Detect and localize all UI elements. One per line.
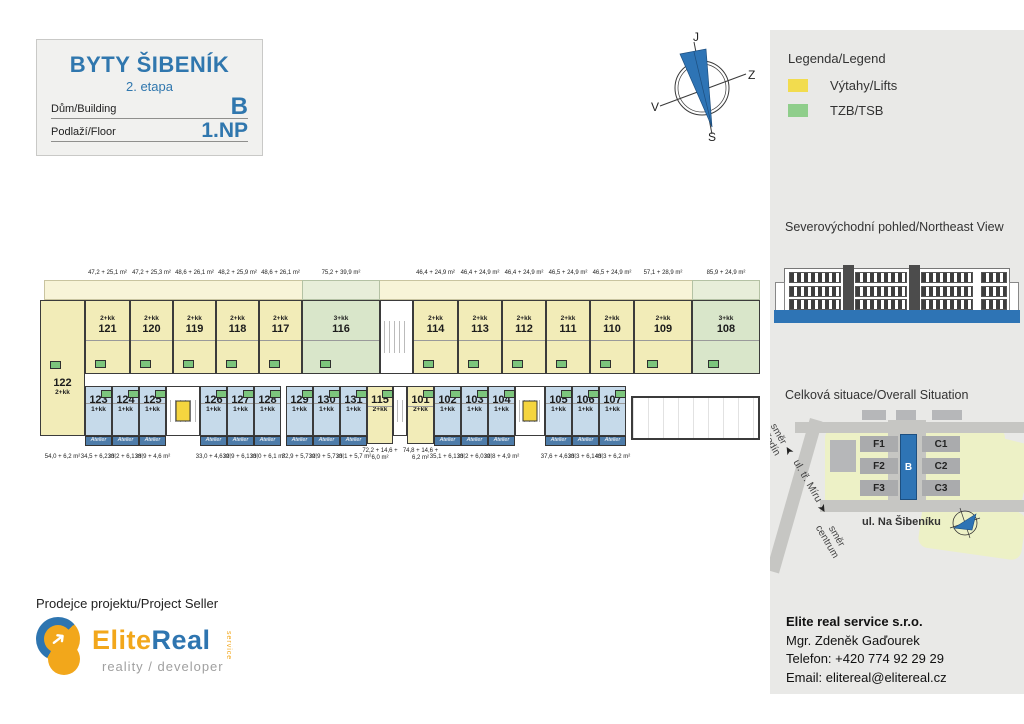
atelier-strip: Atelier [545,436,572,446]
unit-area-label: 32,8 + 4,9 m² [484,454,520,461]
unit-cell-129: 1291+kk [286,386,313,436]
unit-area-label: 46,4 + 24,9 m² [461,270,500,277]
unit-cell-110: 2+kk110 [590,300,634,374]
unit-area-label: 54,0 + 6,2 m² [45,454,81,461]
unit-type: 3+kk [693,315,759,323]
contact-email: Email: elitereal@elitereal.cz [786,669,947,688]
unit-area-label: 72,2 + 14,6 + 6,0 m² [362,448,397,461]
mini-compass-icon [948,506,982,540]
unit-type: 1+kk [201,406,226,414]
unit-type: 2+kk [41,389,84,397]
atelier-strip: Atelier [599,436,626,446]
unit-cell-111: 2+kk111 [546,300,590,374]
unit-type: 1+kk [489,406,514,414]
unit-type: 2+kk [174,315,215,323]
building-c2: C2 [922,458,960,474]
unit-number: 113 [459,323,501,335]
unit-type: 1+kk [287,406,312,414]
overall-situation-title: Celková situace/Overall Situation [785,388,968,402]
garden-strip [44,280,760,300]
unit-area-label: 57,1 + 28,9 m² [644,270,683,277]
unit-type: 1+kk [341,406,366,414]
legend-item-tzb: TZB/TSB [788,103,883,118]
unit-area-label: 46,5 + 24,9 m² [549,270,588,277]
unit-cell-107: 1071+kk [599,386,626,436]
atelier-strip: Atelier [340,436,367,446]
atelier-strip: Atelier [572,436,599,446]
legend-title: Legenda/Legend [788,51,886,66]
unit-type: 1+kk [573,406,598,414]
unit-type: 1+kk [255,406,280,414]
side-wing [775,282,785,312]
building-value: B [231,96,248,118]
unit-type: 2+kk [414,315,457,323]
unit-number: 110 [591,323,633,335]
stair-core [393,386,407,436]
unit-cell-125: 1251+kk [139,386,166,436]
compass-s: S [708,130,716,142]
elevator-core [166,386,200,436]
road [820,500,1024,512]
unit-cell-106: 1061+kk [572,386,599,436]
unit-cell-113: 2+kk113 [458,300,502,374]
atelier-strip: Atelier [112,436,139,446]
lift-color-swatch [788,79,808,92]
brand-elite: Elite [92,625,152,655]
unit-number: 111 [547,323,589,335]
unit-area-label: 46,4 + 24,9 m² [416,270,455,277]
contact-company: Elite real service s.r.o. [786,613,947,632]
brand-service: service [225,631,232,660]
side-wing [1009,282,1019,312]
floor-value: 1.NP [201,121,248,141]
street-name: ul. Na Šibeníku [862,516,941,528]
garden-strip [302,280,380,300]
unit-number: 117 [260,323,301,335]
garden-strip [692,280,760,300]
elevator-shaft [523,401,538,422]
info-panel: Legenda/Legend Výtahy/Lifts TZB/TSB Seve… [770,30,1024,694]
unit-cell-127: 1271+kk [227,386,254,436]
unit-type: 2+kk [503,315,545,323]
unit-number: 122 [41,377,84,389]
contact-person: Mgr. Zdeněk Gaďourek [786,632,947,651]
atelier-strip: Atelier [200,436,227,446]
direction-centrum: směr centrum [813,518,850,560]
unit-area-label: 38,9 + 4,6 m² [135,454,171,461]
unit-type: 1+kk [435,406,460,414]
unit-cell-121: 2+kk121 [85,300,130,374]
atelier-strip: Atelier [254,436,281,446]
brand-real: Real [152,625,211,655]
unit-type: 1+kk [600,406,625,414]
unit-type: 1+kk [86,406,111,414]
building-label: Dům/Building [51,103,116,118]
unit-cell-124: 1241+kk [112,386,139,436]
unit-cell-123: 1231+kk [85,386,112,436]
unit-area-label: 48,2 + 25,9 m² [218,270,257,277]
unit-area-label: 75,2 + 39,9 m² [322,270,361,277]
unit-type: 3+kk [303,315,379,323]
unit-cell-130: 1301+kk [313,386,340,436]
legend-item-lifts: Výtahy/Lifts [788,78,897,93]
building-c3: C3 [922,480,960,496]
unit-area-label: 47,2 + 25,3 m² [132,270,171,277]
atelier-strip: Atelier [85,436,112,446]
atelier-strip: Atelier [488,436,515,446]
unit-area-label: 46,4 + 24,9 m² [505,270,544,277]
building-block [862,410,886,420]
unit-cell-103: 1031+kk [461,386,488,436]
highlighted-floor-band [774,310,1020,323]
unit-area-label: 46,5 + 24,9 m² [593,270,632,277]
unit-type: 1+kk [113,406,138,414]
unit-cell-120: 2+kk120 [130,300,173,374]
unit-cell-116: 3+kk116 [302,300,380,374]
unit-cell-109: 2+kk109 [634,300,692,374]
unit-type: 1+kk [314,406,339,414]
unit-area-label: 48,6 + 26,1 m² [261,270,300,277]
brand-tagline: reality / developer [102,659,224,674]
floor-label: Podlaží/Floor [51,126,116,141]
building-f2: F2 [860,458,898,474]
building-block [932,410,962,420]
unit-type: 2+kk [635,315,691,323]
unit-type: 2+kk [591,315,633,323]
brand-name: EliteReal [92,625,211,656]
unit-cell-117: 2+kk117 [259,300,302,374]
seller-heading: Prodejce projektu/Project Seller [36,596,218,611]
tzb-color-swatch [788,104,808,117]
elitereal-logo-icon: ➜ [36,617,82,675]
atelier-strip: Atelier [286,436,313,446]
project-title: BYTY ŠIBENÍK [51,54,248,76]
unit-cell-108: 3+kk108 [692,300,760,374]
unit-type: 2+kk [260,315,301,323]
unit-cell-114: 2+kk114 [413,300,458,374]
compass-v: V [651,100,659,114]
unit-cell-131: 1311+kk [340,386,367,436]
unit-cell-118: 2+kk118 [216,300,259,374]
unit-cell-119: 2+kk119 [173,300,216,374]
compass-z: Z [748,68,755,82]
unit-number: 109 [635,323,691,335]
unit-cell-128: 1281+kk [254,386,281,436]
building-block [896,410,916,420]
unit-cell-122: 1222+kk [40,300,85,436]
unit-cell-115: 1152+kk [367,386,393,444]
building-b-highlight: B [900,434,917,500]
unit-type: 2+kk [459,315,501,323]
title-block: BYTY ŠIBENÍK 2. etapa Dům/Building B Pod… [36,39,263,156]
unit-cell-102: 1021+kk [434,386,461,436]
unit-number: 114 [414,323,457,335]
building-block [830,440,856,472]
project-stage: 2. etapa [51,79,248,94]
site-plan: F1 F2 F3 B C1 C2 C3 směr Neředín ➤ ul. t… [770,410,1024,610]
unit-number: 108 [693,323,759,335]
atelier-strip: Atelier [227,436,254,446]
unit-cell-104: 1041+kk [488,386,515,436]
legend-label: TZB/TSB [830,103,883,118]
unit-number: 120 [131,323,172,335]
unit-area-label: 47,2 + 25,1 m² [88,270,127,277]
atelier-strip: Atelier [139,436,166,446]
building-c1: C1 [922,436,960,452]
building-f1: F1 [860,436,898,452]
contact-phone: Telefon: +420 774 92 29 29 [786,650,947,669]
compass-rose: J Z V S [650,30,756,142]
northeast-elevation [774,262,1020,328]
unit-area-label: 85,9 + 24,9 m² [707,270,746,277]
unit-type: 1+kk [462,406,487,414]
elevator-shaft [176,401,191,422]
unit-type: 1+kk [228,406,253,414]
unit-type: 2+kk [86,315,129,323]
building-f3: F3 [860,480,898,496]
unit-cell-105: 1051+kk [545,386,572,436]
floor-plan: 1222+kk54,0 + 6,2 m²2+kk12147,2 + 25,1 m… [40,268,764,488]
unit-number: 119 [174,323,215,335]
atelier-strip: Atelier [461,436,488,446]
unit-cell-112: 2+kk112 [502,300,546,374]
compass-icon: J Z V S [650,30,756,142]
atelier-strip: Atelier [434,436,461,446]
atelier-strip: Atelier [313,436,340,446]
compass-j: J [693,30,699,44]
unit-number: 121 [86,323,129,335]
stair-core [380,300,413,374]
legend-label: Výtahy/Lifts [830,78,897,93]
unit-type: 2+kk [547,315,589,323]
unit-type: 2+kk [217,315,258,323]
unit-type: 1+kk [546,406,571,414]
unit-number: 116 [303,323,379,335]
unit-type: 2+kk [368,406,392,414]
unit-type: 2+kk [408,406,433,414]
elitereal-logo: ➜ EliteReal service reality / developer [36,615,286,690]
contact-block: Elite real service s.r.o. Mgr. Zdeněk Ga… [786,613,947,687]
unit-type: 2+kk [131,315,172,323]
unit-number: 118 [217,323,258,335]
garage-hall [631,396,760,440]
unit-type: 1+kk [140,406,165,414]
elevator-core [515,386,545,436]
northeast-view-title: Severovýchodní pohled/Northeast View [785,220,1004,234]
unit-cell-126: 1261+kk [200,386,227,436]
unit-area-label: 33,0 + 6,1 m² [250,454,286,461]
elevation-building [784,268,1010,316]
unit-number: 112 [503,323,545,335]
unit-area-label: 43,3 + 6,2 m² [595,454,631,461]
unit-cell-101: 1012+kk [407,386,434,444]
unit-area-label: 48,6 + 26,1 m² [175,270,214,277]
